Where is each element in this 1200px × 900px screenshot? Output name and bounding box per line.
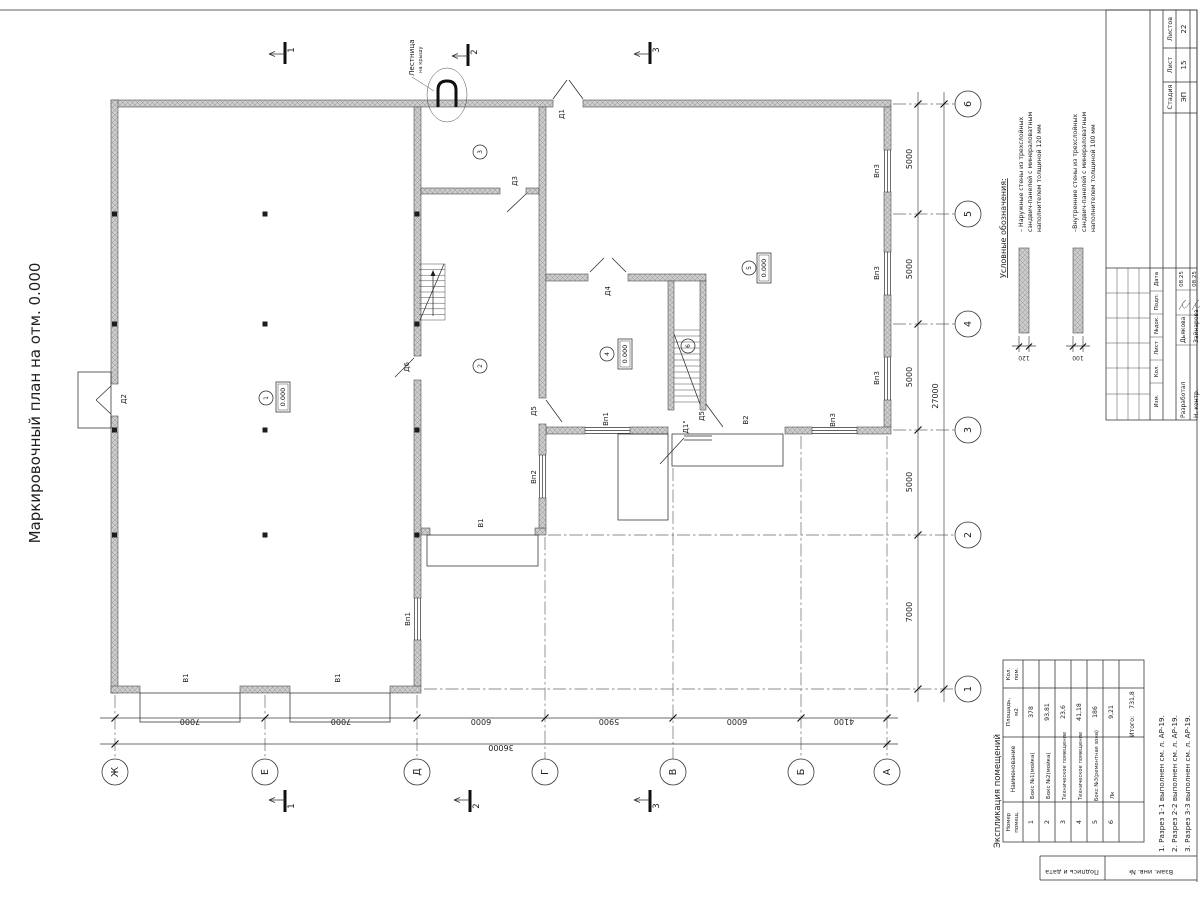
entrance-vestibule — [78, 372, 111, 428]
stamp-col-kol: Кол. — [1154, 364, 1160, 377]
row2-num: 2 — [1043, 820, 1051, 824]
label-v1-c: В1 — [477, 518, 485, 527]
label-d2: Д2 — [120, 394, 128, 404]
note-1: 1. Разрез 1-1 выполнен см. л. АР-19. — [1157, 715, 1166, 852]
axis-letter-d: Д — [412, 768, 423, 775]
stamp-col-data: Дата — [1154, 272, 1160, 286]
axis-letter-a: А — [882, 768, 893, 775]
label-vp3-b: Вп3 — [873, 266, 881, 280]
row2-name: Бокс №2(мойка) — [1045, 752, 1052, 799]
roof-ladder-label-2: на крышу — [418, 46, 424, 73]
table-row-6: 6 Лк 9,21 — [1107, 705, 1116, 824]
row4-num: 4 — [1075, 820, 1083, 824]
table-row-1: 1 Бокс №1(мойка) 378 — [1027, 706, 1036, 824]
row2-area: 93,81 — [1044, 703, 1051, 721]
vent-openings — [415, 150, 891, 640]
stamp-stage-label: Стадия — [1166, 84, 1174, 109]
stamp-col-izm: Изм. — [1154, 394, 1160, 407]
dim-3-2: 5000 — [905, 472, 914, 492]
stamp-sheet-label: Лист — [1166, 57, 1174, 74]
gate-boxes — [78, 372, 783, 722]
axis-number-5: 5 — [963, 211, 974, 217]
row3-area: 23,6 — [1060, 705, 1067, 719]
legend-symbol-interior-wall — [1066, 248, 1090, 352]
title-block-lines — [1106, 10, 1197, 420]
stamp-sheets-label: Листов — [1166, 17, 1174, 41]
axis-letter-b: Б — [796, 769, 807, 776]
room-number-4: 4 — [604, 352, 611, 356]
staircase-room2 — [419, 264, 445, 320]
table-header-num-1: Номер — [1006, 812, 1012, 831]
axis-letter-e: Е — [260, 769, 271, 775]
row4-area: 41,18 — [1076, 703, 1083, 721]
legend-item2-line2: сэндвич-панелей с минераловатным — [1080, 112, 1088, 232]
axis-number-6: 6 — [963, 101, 974, 107]
label-vp3-c: Вп3 — [873, 371, 881, 385]
label-vp3-a: Вп3 — [873, 164, 881, 178]
label-v1-b: В1 — [334, 673, 342, 682]
label-d1s: Д1" — [682, 420, 690, 433]
row6-num: 6 — [1107, 820, 1115, 824]
table-row-5: 5 Бокс №3(ремонтная зона) 186 — [1091, 706, 1100, 824]
section-3-top: 3 — [652, 47, 662, 52]
stamp-role-2: Н. контр. — [1193, 389, 1200, 418]
table-header-area-2: м2 — [1014, 708, 1020, 716]
stamp-role-1: Разработал — [1180, 381, 1187, 418]
row5-area: 186 — [1092, 706, 1099, 718]
staircase-lk — [674, 330, 700, 404]
stamp-col-podp: Подп. — [1154, 293, 1160, 310]
legend-symbol-exterior-wall — [1012, 248, 1036, 352]
label-d4: Д4 — [604, 286, 612, 296]
door-leaves — [96, 80, 723, 464]
row1-name: Бокс №1(мойка) — [1029, 752, 1036, 799]
axis-number-1: 1 — [963, 686, 974, 692]
dim-v-b: 6000 — [727, 717, 747, 726]
stamp-stage-value: ЭП — [1180, 92, 1188, 102]
axis-number-2: 2 — [963, 532, 974, 538]
row5-name: Бокс №3(ремонтная зона) — [1094, 730, 1100, 801]
axis-number-4: 4 — [963, 321, 974, 327]
axis-number-3: 3 — [963, 427, 974, 433]
section-3-bottom: 3 — [652, 803, 662, 808]
dim-b-a: 4100 — [834, 717, 854, 726]
table-header-name: Наименование — [1010, 745, 1017, 792]
dim-6-5: 5000 — [905, 149, 914, 169]
dim-2-1: 7000 — [905, 602, 914, 622]
section-2-top: 2 — [470, 49, 480, 54]
side-label-podpis: Подпись и дата — [1045, 868, 1099, 876]
axis-letter-v: В — [668, 769, 679, 776]
dim-d-g: 6000 — [471, 717, 491, 726]
table-total-value: 731,8 — [1129, 691, 1136, 709]
row4-name: Техническое помещение — [1078, 732, 1084, 801]
label-v2: В2 — [742, 415, 750, 424]
signature-2 — [1192, 300, 1200, 310]
table-header-count-1: Кол. — [1006, 667, 1012, 680]
room-number-2: 2 — [477, 364, 484, 368]
table-header-area-1: Площадь, — [1006, 698, 1012, 727]
columns — [112, 212, 420, 538]
label-vp3-d: Вп3 — [829, 413, 837, 427]
elevation-room4: 0.000 — [621, 345, 629, 364]
legend-dim-120: 120 — [1018, 354, 1030, 361]
interior-walls — [414, 107, 706, 686]
axis-letter-zh: Ж — [110, 766, 121, 777]
stamp-sheet-value: 15 — [1180, 61, 1188, 70]
note-3: 3. Разрез 3-3 выполнен см. л. АР-19. — [1183, 715, 1192, 852]
dim-5-4: 5000 — [905, 259, 914, 279]
room-number-6: 6 — [685, 344, 692, 348]
dim-g-v: 5900 — [599, 717, 619, 726]
section-2-bottom: 2 — [472, 803, 482, 808]
label-vp1-b: Вп1 — [602, 412, 610, 426]
plan-canvas: Маркировочный план на отм. 0.000 — [0, 0, 1200, 900]
page-title: Маркировочный план на отм. 0.000 — [26, 263, 44, 544]
row6-name: Лк — [1110, 791, 1116, 799]
row3-num: 3 — [1059, 820, 1067, 824]
section-1-bottom: 1 — [287, 803, 297, 808]
section-1-top: 1 — [287, 47, 297, 52]
dim-total-right: 27000 — [931, 383, 940, 408]
room-table-title: Экспликация помещений — [993, 734, 1003, 848]
axis-letter-g: Г — [540, 769, 551, 775]
side-label-vzam: Взам. инв. № — [1129, 868, 1173, 876]
room-number-5: 5 — [746, 266, 753, 270]
stamp-date-1: 08.25 — [1179, 271, 1185, 287]
stamp-date-2: 08.25 — [1192, 271, 1198, 287]
signature-1 — [1179, 300, 1190, 310]
legend-item1-line3: наполнителем толщиной 120 мм — [1035, 124, 1043, 232]
table-header-num-2: помещ. — [1014, 811, 1020, 833]
label-d6: Д6 — [403, 362, 411, 372]
room-number-3: 3 — [477, 150, 484, 154]
drawing-sheet: Маркировочный план на отм. 0.000 — [0, 0, 1200, 900]
label-d5-a: Д5 — [530, 406, 538, 416]
exterior-walls — [111, 100, 891, 693]
note-2: 2. Разрез 2-2 выполнен см. л. АР-19. — [1170, 715, 1179, 852]
stamp-name-2: Зайнарова — [1193, 309, 1200, 343]
stamp-name-1: Дьякова — [1180, 316, 1187, 343]
label-vp1-a: Вп1 — [404, 612, 412, 626]
label-vp2: Вп2 — [530, 470, 538, 484]
elevation-room5: 0.000 — [760, 259, 768, 278]
table-row-2: 2 Бокс №2(мойка) 93,81 — [1043, 703, 1052, 824]
bottom-dimensions — [100, 715, 898, 748]
legend-item1-line1: – Наружные стены из трехслойных — [1017, 117, 1025, 232]
label-d1: Д1 — [558, 109, 566, 119]
table-row-4: 4 Техническое помещение 41,18 — [1075, 703, 1084, 824]
section-markers — [269, 42, 650, 812]
legend-item2-line1: –Внутренние стены из трехслойных — [1071, 114, 1079, 232]
table-total-label: Итого: — [1129, 716, 1136, 737]
legend-item2-line3: наполнителем толщиной 100 мм — [1089, 124, 1097, 232]
row6-area: 9,21 — [1108, 705, 1115, 719]
stamp-col-ndok: №док. — [1154, 316, 1160, 334]
label-d3: Д3 — [511, 176, 519, 186]
stamp-col-list: Лист — [1154, 340, 1160, 355]
label-d5-b: Д5 — [698, 411, 706, 421]
row5-num: 5 — [1091, 820, 1099, 824]
room-table-lines — [1003, 660, 1144, 842]
dim-total-bottom: 36000 — [488, 743, 513, 752]
label-v1-a: В1 — [182, 673, 190, 682]
elevation-room1: 0.000 — [279, 388, 287, 407]
plan-labels: Д1 Д2 Д3 Д4 Д5 Д5 Д1" Д6 В1 В1 В1 В2 Вп1… — [120, 109, 881, 683]
axis-bubbles-right — [955, 91, 981, 702]
legend-heading: Условные обозначения: — [999, 178, 1008, 278]
legend-item1-line2: сэндвич-панелей с минераловатным — [1026, 112, 1034, 232]
axis-bubbles-bottom — [102, 759, 900, 785]
row3-name: Техническое помещение — [1062, 732, 1068, 801]
dim-zh-e: 7000 — [180, 717, 200, 726]
table-row-3: 3 Техническое помещение 23,6 — [1059, 705, 1068, 824]
dim-e-d: 7000 — [331, 717, 351, 726]
dim-4-3: 5000 — [905, 367, 914, 387]
axis-lines — [115, 104, 955, 759]
roof-ladder-label-1: Лестница — [407, 39, 416, 76]
row1-area: 378 — [1028, 706, 1035, 718]
table-header-count-2: пом. — [1014, 667, 1020, 680]
legend-dim-100: 100 — [1072, 354, 1084, 361]
row1-num: 1 — [1027, 820, 1035, 824]
stamp-sheets-value: 22 — [1180, 25, 1188, 34]
room-number-1: 1 — [263, 396, 270, 400]
